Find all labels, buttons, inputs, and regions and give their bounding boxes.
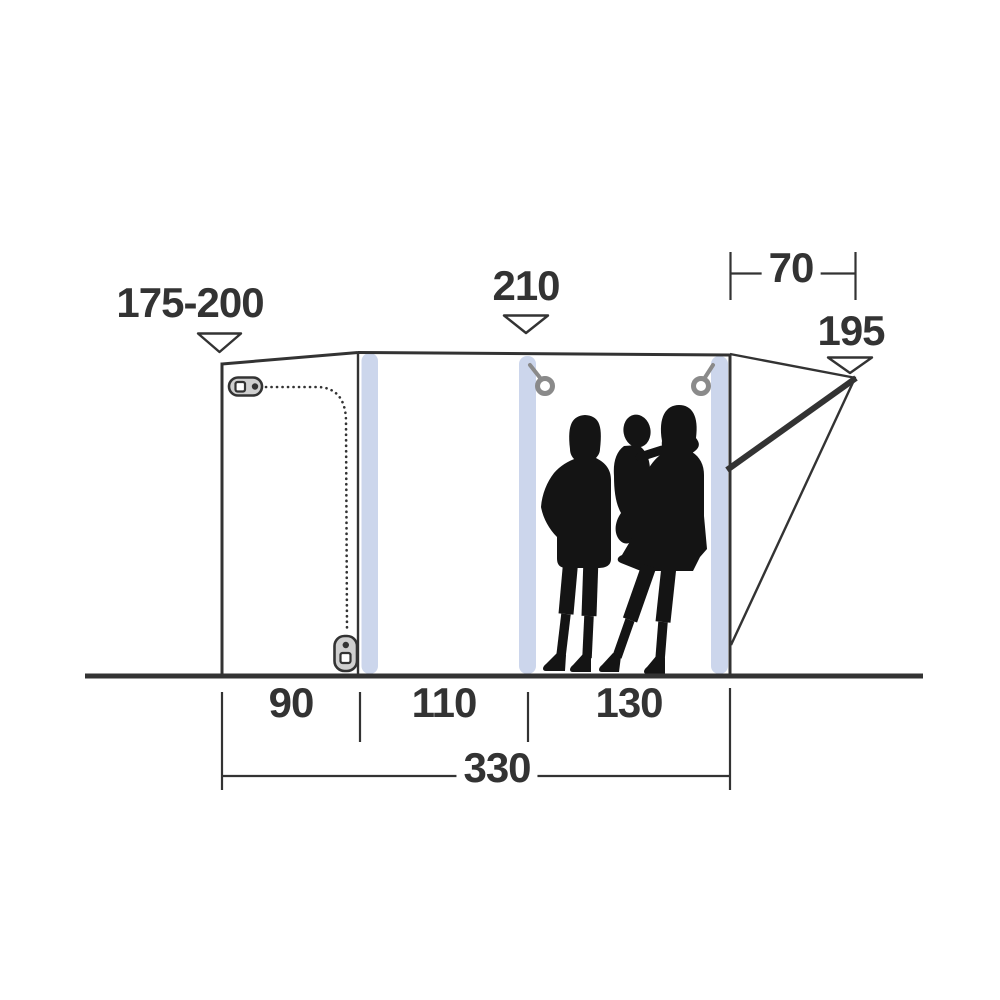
zipper-pull-top-icon	[229, 378, 262, 396]
adult-right-foot-2	[644, 655, 665, 674]
dim-label-center-height: 210	[492, 265, 559, 307]
adult-left-thigh-2	[589, 558, 591, 616]
zipper-pull-hole	[341, 653, 351, 663]
dim-label-canopy-depth: 70	[762, 247, 821, 289]
adult-left-foot-2	[570, 654, 591, 672]
tent-dimension-diagram: 175-200 210 70 195 90 110 130 330	[0, 0, 1000, 1000]
zipper-door	[229, 378, 357, 672]
zipper-stitch-path	[266, 387, 347, 628]
zipper-pull-pin	[252, 383, 258, 389]
adult-right-head	[661, 405, 699, 456]
diagram-drawing	[0, 0, 1000, 1000]
air-beam-left	[362, 353, 379, 674]
child-head	[621, 412, 653, 449]
tieback-ring	[694, 379, 709, 394]
tieback-right-icon	[694, 365, 714, 394]
tent-roof-main-segment	[358, 353, 730, 356]
family-silhouette	[541, 405, 707, 674]
air-beam-middle	[519, 356, 536, 674]
tieback-ring	[538, 379, 553, 394]
canopy-guy-line	[731, 378, 855, 645]
tent-roof-left-segment	[222, 353, 358, 365]
arrow-down-triangle-icon-210	[504, 316, 548, 334]
arrow-down-triangle-icon-195	[828, 358, 872, 374]
adult-left-head	[569, 415, 601, 464]
adult-right-thigh-2	[663, 566, 669, 622]
zipper-pull-hole	[236, 382, 246, 392]
dim-label-section-right: 130	[595, 682, 662, 724]
tent-outline	[222, 353, 856, 677]
adult-right-calf-2	[660, 622, 663, 660]
dim-label-section-left: 90	[269, 682, 314, 724]
dim-label-section-middle: 110	[412, 682, 477, 724]
dim-label-left-height: 175-200	[116, 282, 263, 324]
arrow-down-triangle-icon-175	[198, 334, 241, 353]
adult-left-body	[541, 458, 611, 568]
canopy-pole	[727, 378, 856, 470]
dim-label-total-width: 330	[456, 747, 537, 789]
dimension-lines	[222, 252, 856, 790]
adult-left-thigh	[566, 558, 571, 614]
adult-left-calf	[561, 614, 566, 656]
adult-right-thigh	[630, 566, 649, 620]
dim-label-canopy-height: 195	[817, 310, 884, 352]
air-beam-right	[711, 356, 728, 674]
adult-left-foot	[543, 652, 566, 671]
adult-right-foot	[599, 653, 621, 672]
zipper-pull-pin	[343, 642, 349, 648]
adult-left-calf-2	[587, 616, 589, 658]
zipper-pull-bottom-icon	[335, 636, 358, 671]
adult-right-calf	[617, 620, 630, 657]
